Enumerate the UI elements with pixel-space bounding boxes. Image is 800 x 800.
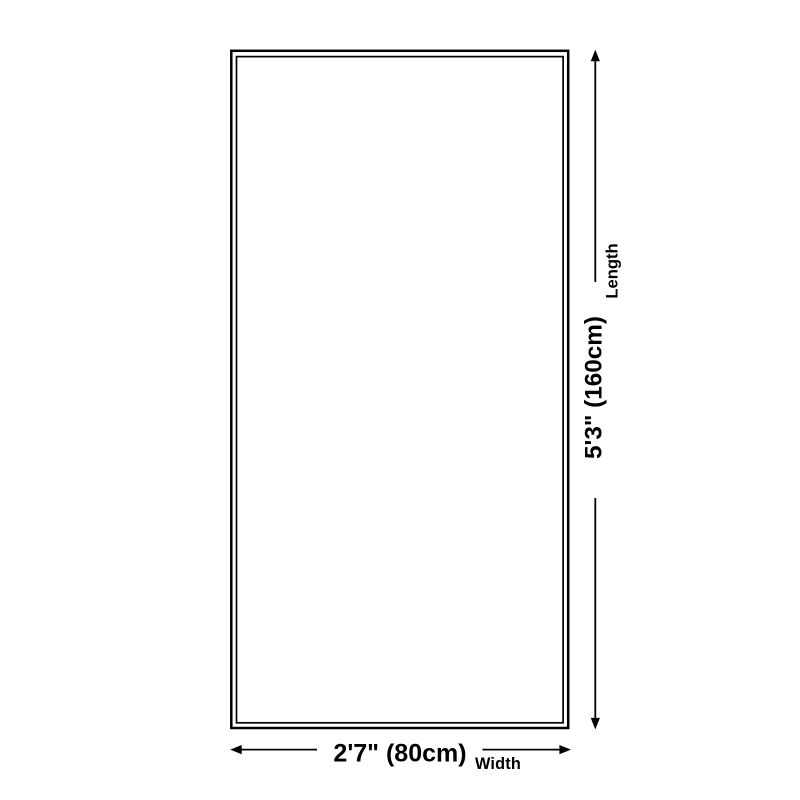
svg-text:Width: Width [475,755,521,773]
svg-text:2'7" (80cm): 2'7" (80cm) [333,740,466,768]
svg-text:Length: Length [603,243,622,298]
svg-text:5'3" (160cm): 5'3" (160cm) [580,316,607,459]
